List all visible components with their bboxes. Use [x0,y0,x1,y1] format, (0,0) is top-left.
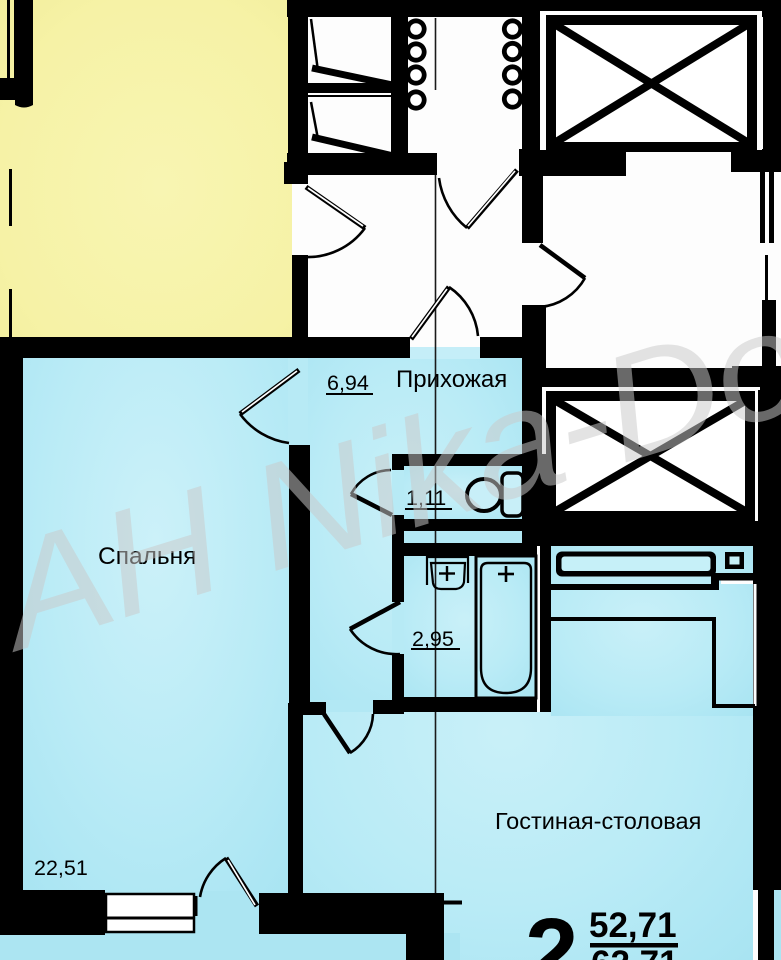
svg-text:2: 2 [525,899,578,960]
svg-text:6,94: 6,94 [327,371,369,395]
svg-text:Гостиная-столовая: Гостиная-столовая [495,808,701,834]
svg-text:52,71: 52,71 [589,906,677,945]
svg-text:62,71: 62,71 [591,944,679,960]
svg-text:2,95: 2,95 [412,627,454,651]
svg-text:22,51: 22,51 [34,856,88,880]
